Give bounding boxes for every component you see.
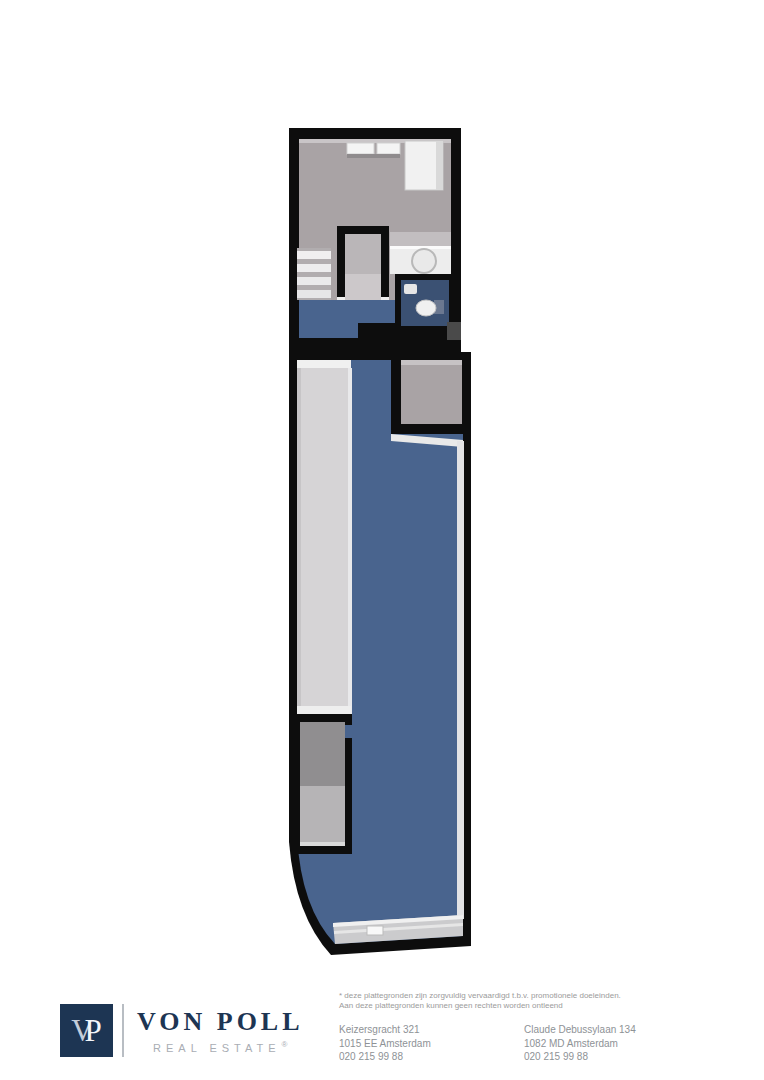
floor-plan	[287, 128, 473, 958]
tall-cabinet-shade	[436, 141, 443, 190]
kitchen-cabinet	[377, 143, 400, 154]
footer-text-block: * deze plattegronden zijn zorgvuldig ver…	[339, 991, 709, 1064]
upper-unit	[289, 128, 461, 354]
disclaimer: * deze plattegronden zijn zorgvuldig ver…	[339, 991, 709, 1011]
office-address: Keizersgracht 321	[339, 1023, 524, 1037]
office-keizersgracht: Keizersgracht 321 1015 EE Amsterdam 020 …	[339, 1023, 524, 1064]
monogram-p: P	[85, 1013, 102, 1049]
office-claude-debussylaan: Claude Debussylaan 134 1082 MD Amsterdam…	[524, 1023, 709, 1064]
toilet-icon	[416, 300, 436, 316]
strip-divider	[348, 368, 352, 714]
office-city: 1015 EE Amsterdam	[339, 1037, 524, 1051]
stair-tread	[297, 277, 331, 285]
disclaimer-line-1: * deze plattegronden zijn zorgvuldig ver…	[339, 991, 709, 1001]
sink-icon	[412, 249, 436, 273]
lower-unit	[289, 352, 471, 955]
registered-mark: ®	[282, 1040, 288, 1049]
stair-enclosure	[337, 226, 389, 300]
door-post	[337, 297, 345, 300]
enclosure-wall	[381, 226, 389, 300]
closet-door-gap	[345, 725, 352, 738]
dividing-wall	[289, 338, 461, 354]
washbasin-icon	[404, 284, 417, 294]
backsplash	[390, 232, 451, 246]
enclosure-floor-light	[345, 274, 381, 300]
strip-bottom-sill	[297, 706, 351, 714]
strip-left-shade	[297, 368, 301, 714]
closet	[292, 714, 352, 854]
office-addresses: Keizersgracht 321 1015 EE Amsterdam 020 …	[339, 1023, 709, 1064]
vp-monogram: VP	[60, 1004, 113, 1057]
side-strip-floor	[297, 360, 352, 714]
brand-name: VON POLL	[137, 1007, 304, 1037]
side-strip	[297, 360, 351, 714]
floor-plan-svg	[287, 128, 473, 958]
office-phone: 020 215 99 88	[339, 1050, 524, 1064]
office-address: Claude Debussylaan 134	[524, 1023, 709, 1037]
stair-tread	[297, 290, 331, 298]
strip-top-sill	[297, 360, 351, 368]
closet-sill	[300, 842, 345, 846]
door-post	[381, 297, 389, 300]
alcove	[391, 352, 471, 447]
kitchen-cabinet	[347, 143, 374, 154]
alcove-shading	[401, 360, 462, 365]
cabinet-shadow	[347, 154, 400, 158]
shaft	[447, 322, 461, 340]
office-phone: 020 215 99 88	[524, 1050, 709, 1064]
alcove-floor	[401, 360, 462, 424]
vonpoll-logo: VP VON POLL REAL ESTATE®	[60, 1004, 304, 1057]
logo-divider	[122, 1004, 124, 1057]
tagline-text: REAL ESTATE	[153, 1042, 281, 1054]
enclosure-wall	[337, 226, 345, 300]
logo-wordmark: VON POLL REAL ESTATE®	[137, 1007, 304, 1054]
office-city: 1082 MD Amsterdam	[524, 1037, 709, 1051]
brand-tagline: REAL ESTATE®	[137, 1040, 304, 1054]
brochure-page: VP VON POLL REAL ESTATE® * deze plattegr…	[0, 0, 764, 1080]
stair-tread	[297, 251, 331, 259]
doormat	[367, 926, 383, 935]
closet-floor-light	[300, 786, 345, 846]
disclaimer-line-2: Aan deze plattegronden kunnen geen recht…	[339, 1001, 709, 1011]
stairs	[297, 248, 331, 300]
right-wall-face	[457, 441, 464, 919]
stair-tread	[297, 264, 331, 272]
